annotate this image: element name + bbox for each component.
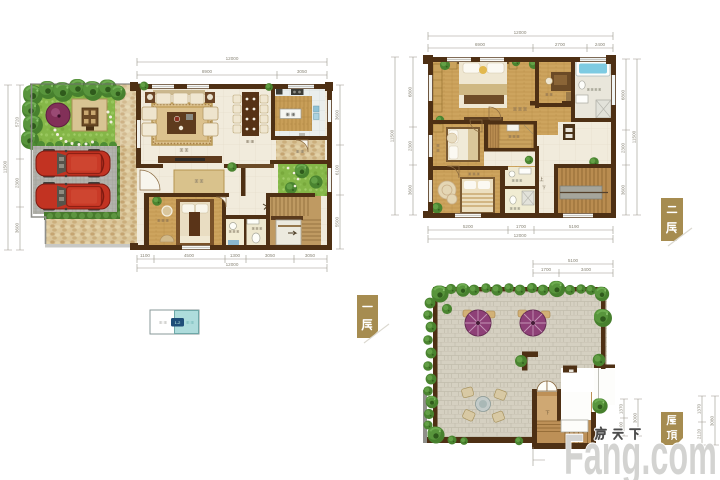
svg-text:3600: 3600	[335, 109, 340, 120]
svg-text:6100: 6100	[335, 164, 340, 175]
svg-text:3050: 3050	[265, 253, 276, 258]
svg-text:1-2: 1-2	[175, 320, 182, 325]
svg-text:2700: 2700	[555, 42, 566, 47]
svg-text:2400: 2400	[595, 42, 606, 47]
svg-text:12000: 12000	[514, 233, 527, 238]
svg-text:5190: 5190	[569, 224, 580, 229]
svg-text:1370: 1370	[619, 403, 624, 414]
svg-text:12000: 12000	[226, 262, 239, 267]
svg-text:Fang.com: Fang.com	[564, 422, 717, 480]
svg-text:11500: 11500	[390, 129, 395, 142]
svg-text:1700: 1700	[516, 224, 527, 229]
svg-text:6800: 6800	[621, 89, 626, 100]
svg-text:3600: 3600	[15, 222, 20, 233]
svg-text:1370: 1370	[697, 403, 702, 414]
svg-text:11500: 11500	[632, 130, 637, 143]
svg-text:1300: 1300	[230, 253, 241, 258]
svg-text:11500: 11500	[3, 160, 8, 173]
svg-text:3050: 3050	[305, 253, 316, 258]
svg-text:2300: 2300	[15, 177, 20, 188]
svg-text:1100: 1100	[140, 253, 150, 258]
svg-text:8900: 8900	[202, 69, 213, 74]
svg-text:5500: 5500	[335, 216, 340, 227]
svg-text:12000: 12000	[514, 30, 527, 35]
svg-text:6900: 6900	[475, 42, 486, 47]
svg-text:4500: 4500	[184, 253, 195, 258]
svg-text:6800: 6800	[408, 86, 413, 97]
svg-text:2300: 2300	[408, 140, 413, 151]
svg-text:2300: 2300	[621, 142, 626, 153]
svg-text:3400: 3400	[581, 267, 592, 272]
svg-text:3600: 3600	[621, 184, 626, 195]
svg-text:5720: 5720	[15, 116, 20, 127]
svg-text:1700: 1700	[541, 267, 552, 272]
svg-text:5200: 5200	[463, 224, 474, 229]
svg-text:3600: 3600	[408, 184, 413, 195]
svg-text:5100: 5100	[568, 258, 579, 263]
svg-text:3050: 3050	[297, 69, 308, 74]
svg-text:12000: 12000	[226, 56, 239, 61]
